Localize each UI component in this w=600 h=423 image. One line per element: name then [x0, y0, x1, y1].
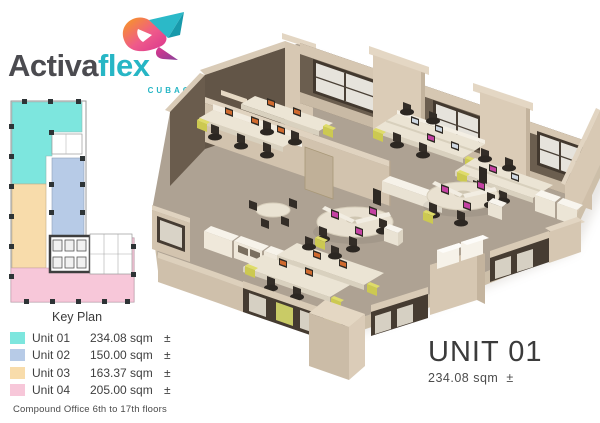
brochure-page: Activaflex CUBAO: [0, 0, 600, 423]
featured-unit-area-pm: ±: [498, 371, 513, 385]
keyplan-service-room: [52, 134, 82, 154]
unit-04-label: Unit 04: [32, 383, 82, 397]
keyplan-map: [6, 96, 148, 310]
unit-04-swatch: [10, 384, 25, 396]
featured-unit-area-value: 234.08 sqm: [428, 371, 498, 385]
unit-02-label: Unit 02: [32, 348, 82, 362]
unit-01-label: Unit 01: [32, 331, 82, 345]
keyplan-unit-02-region: [52, 158, 84, 236]
unit-01-swatch: [10, 332, 25, 344]
featured-unit-area: 234.08 sqm±: [428, 371, 542, 385]
brand-part-flex: flex: [98, 48, 149, 83]
window-pillar-shade: [526, 108, 530, 186]
keyplan-elevator-core: [50, 236, 90, 272]
brand-part-activa: Activa: [8, 48, 98, 83]
unit-03-label: Unit 03: [32, 366, 82, 380]
corner-block-tip: [309, 300, 365, 380]
brand-name: Activaflex: [8, 48, 149, 84]
keyplan-service-block: [90, 234, 132, 274]
unit-03-swatch: [10, 367, 25, 379]
keyplan-unit-03-region: [12, 184, 46, 268]
featured-unit-label: UNIT 01 234.08 sqm±: [428, 336, 542, 385]
unit-02-swatch: [10, 349, 25, 361]
featured-unit-name: UNIT 01: [428, 336, 542, 369]
